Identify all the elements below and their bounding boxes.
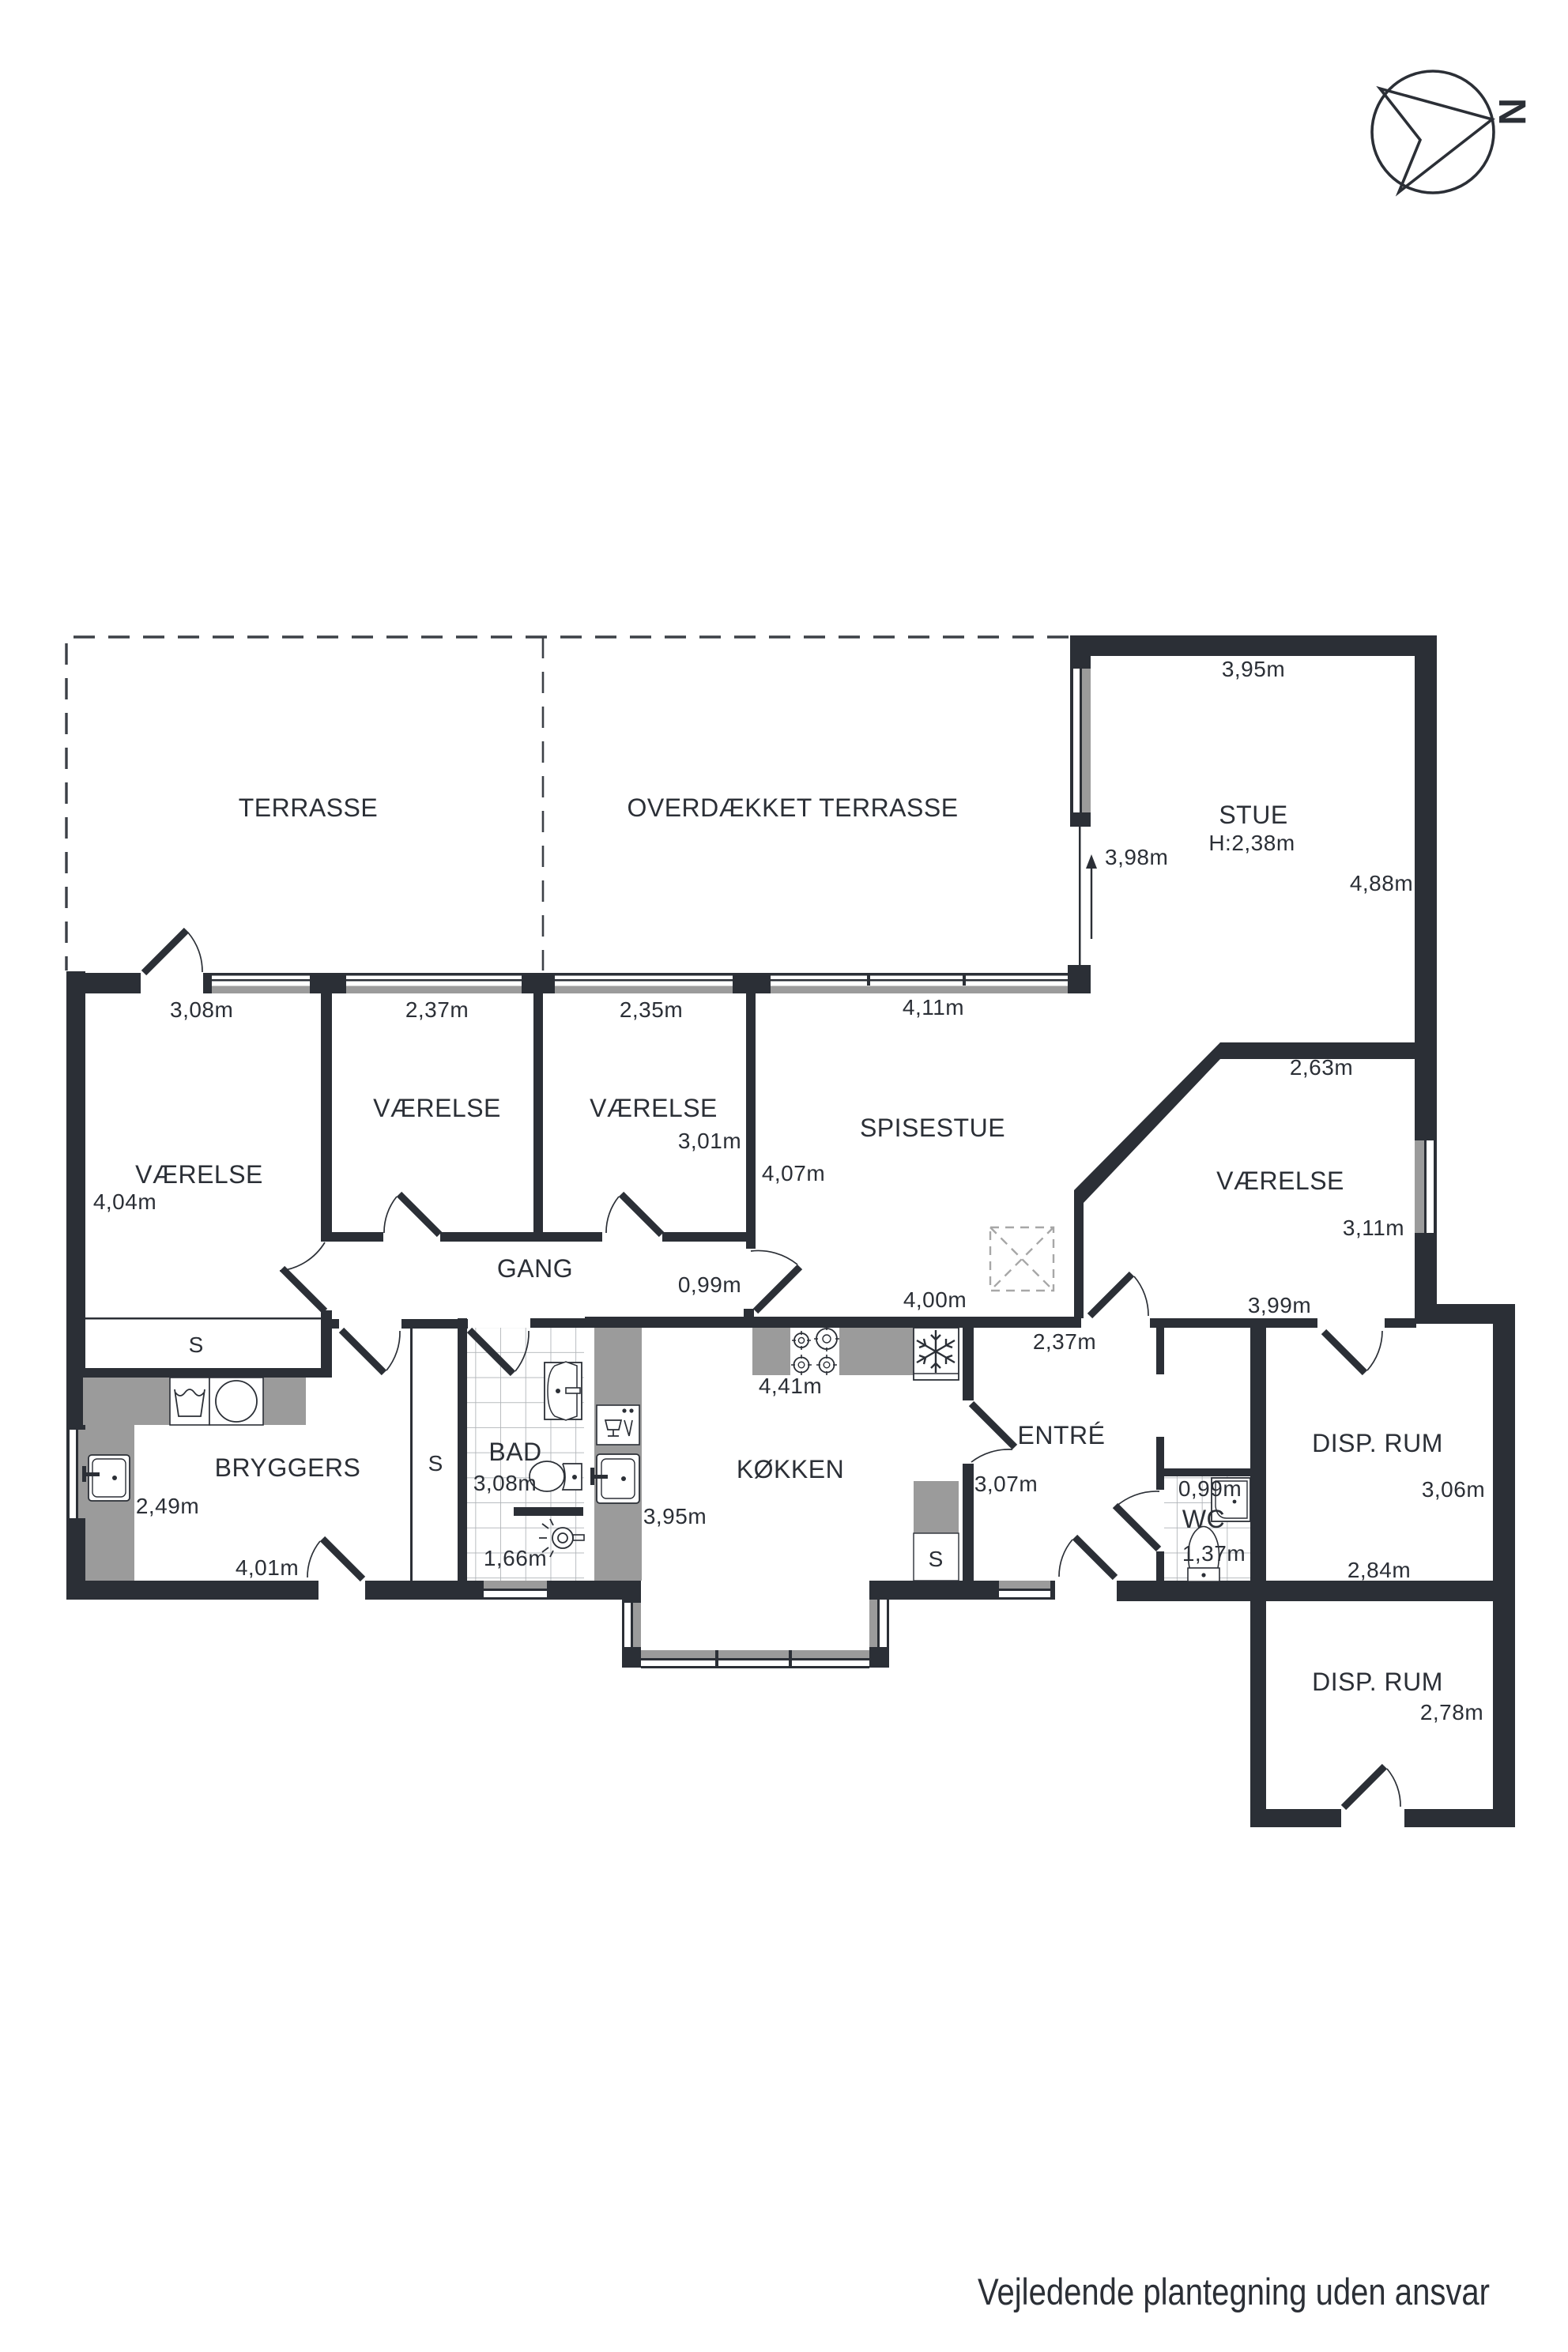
svg-text:4,01m: 4,01m (236, 1555, 299, 1580)
svg-text:2,63m: 2,63m (1290, 1055, 1353, 1080)
svg-text:VÆRELSE: VÆRELSE (373, 1094, 501, 1122)
svg-text:2,37m: 2,37m (1033, 1329, 1096, 1354)
svg-text:H:2,38m: H:2,38m (1208, 831, 1295, 855)
svg-text:VÆRELSE: VÆRELSE (1216, 1167, 1344, 1195)
svg-text:4,11m: 4,11m (903, 995, 964, 1020)
svg-text:VÆRELSE: VÆRELSE (135, 1160, 263, 1189)
svg-text:GANG: GANG (497, 1254, 573, 1283)
svg-text:3,99m: 3,99m (1248, 1293, 1311, 1317)
svg-text:S: S (929, 1547, 944, 1571)
svg-text:3,95m: 3,95m (1222, 657, 1285, 681)
svg-text:3,08m: 3,08m (170, 997, 233, 1022)
svg-text:2,35m: 2,35m (620, 997, 683, 1022)
svg-text:1,66m: 1,66m (484, 1546, 547, 1570)
svg-text:Vejledende plantegning uden an: Vejledende plantegning uden ansvar (978, 2271, 1490, 2312)
svg-text:3,08m: 3,08m (473, 1471, 537, 1495)
svg-text:ENTRÉ: ENTRÉ (1018, 1421, 1106, 1449)
svg-text:4,88m: 4,88m (1350, 871, 1413, 895)
svg-text:3,11m: 3,11m (1343, 1216, 1404, 1240)
svg-text:2,37m: 2,37m (405, 997, 469, 1022)
svg-text:4,07m: 4,07m (762, 1161, 825, 1185)
svg-text:S: S (428, 1451, 443, 1476)
svg-text:3,06m: 3,06m (1422, 1477, 1485, 1502)
svg-text:WC: WC (1182, 1505, 1225, 1533)
svg-text:S: S (189, 1332, 204, 1357)
svg-text:DISP. RUM: DISP. RUM (1312, 1668, 1443, 1696)
svg-text:2,78m: 2,78m (1420, 1700, 1483, 1724)
svg-text:4,00m: 4,00m (903, 1287, 967, 1312)
svg-text:4,04m: 4,04m (93, 1189, 156, 1214)
svg-text:3,07m: 3,07m (974, 1472, 1038, 1496)
svg-text:0,99m: 0,99m (678, 1272, 741, 1297)
svg-text:N: N (1491, 98, 1532, 126)
svg-text:2,84m: 2,84m (1347, 1558, 1411, 1582)
svg-text:2,49m: 2,49m (136, 1494, 199, 1518)
svg-text:4,41m: 4,41m (759, 1374, 822, 1398)
svg-text:3,95m: 3,95m (643, 1504, 707, 1528)
svg-text:1,37m: 1,37m (1182, 1541, 1246, 1566)
svg-text:OVERDÆKKET TERRASSE: OVERDÆKKET TERRASSE (627, 793, 958, 822)
svg-text:BRYGGERS: BRYGGERS (215, 1453, 361, 1482)
svg-text:SPISESTUE: SPISESTUE (860, 1114, 1005, 1142)
svg-text:DISP. RUM: DISP. RUM (1312, 1429, 1443, 1457)
svg-text:3,98m: 3,98m (1105, 845, 1168, 869)
svg-text:STUE: STUE (1219, 801, 1287, 829)
svg-text:KØKKEN: KØKKEN (737, 1455, 844, 1483)
svg-text:BAD: BAD (488, 1438, 541, 1466)
svg-text:3,01m: 3,01m (678, 1129, 741, 1153)
svg-text:0,99m: 0,99m (1178, 1476, 1242, 1501)
svg-text:TERRASSE: TERRASSE (239, 793, 378, 822)
svg-text:VÆRELSE: VÆRELSE (590, 1094, 718, 1122)
